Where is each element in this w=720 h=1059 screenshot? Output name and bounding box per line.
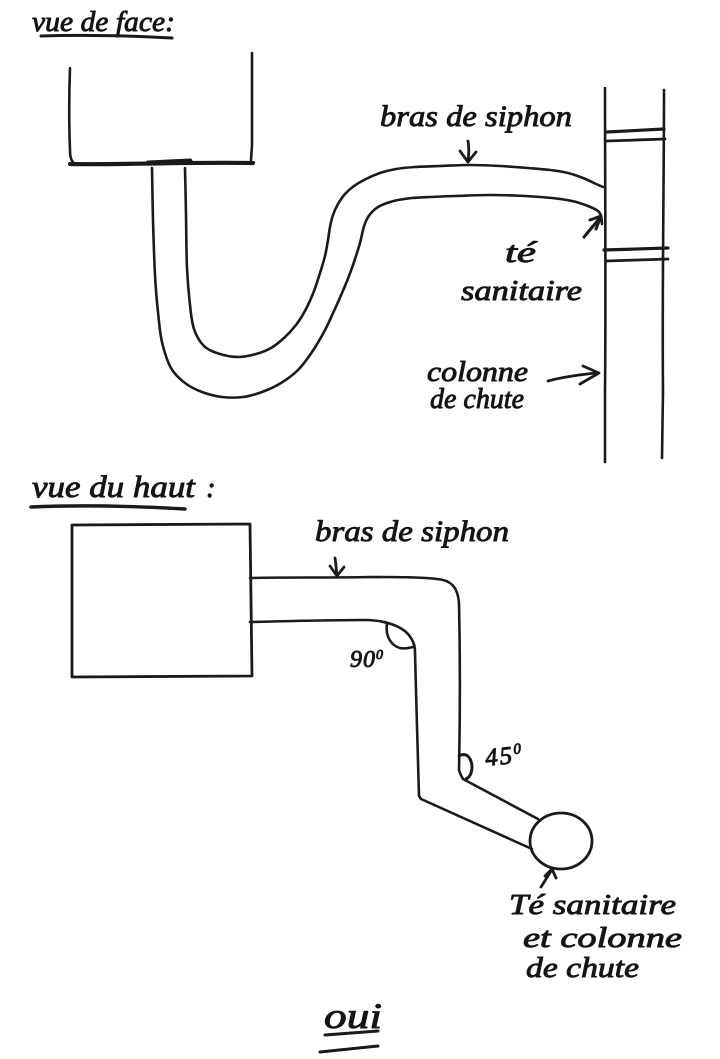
svg-text:vue de face:: vue de face: bbox=[32, 6, 175, 38]
svg-text::: : bbox=[206, 472, 216, 504]
svg-text:bras de siphon: bras de siphon bbox=[315, 515, 509, 548]
svg-text:bras de siphon: bras de siphon bbox=[380, 100, 572, 133]
svg-text:Té sanitaire: Té sanitaire bbox=[509, 889, 676, 921]
svg-text:de chute: de chute bbox=[526, 952, 639, 984]
svg-text:té: té bbox=[505, 236, 538, 269]
svg-text:450: 450 bbox=[484, 741, 525, 772]
svg-text:900: 900 bbox=[350, 647, 384, 673]
svg-text:vue du haut: vue du haut bbox=[32, 469, 197, 504]
svg-text:sanitaire: sanitaire bbox=[461, 275, 582, 307]
svg-text:de chute: de chute bbox=[430, 384, 524, 415]
svg-text:et colonne: et colonne bbox=[523, 922, 682, 954]
